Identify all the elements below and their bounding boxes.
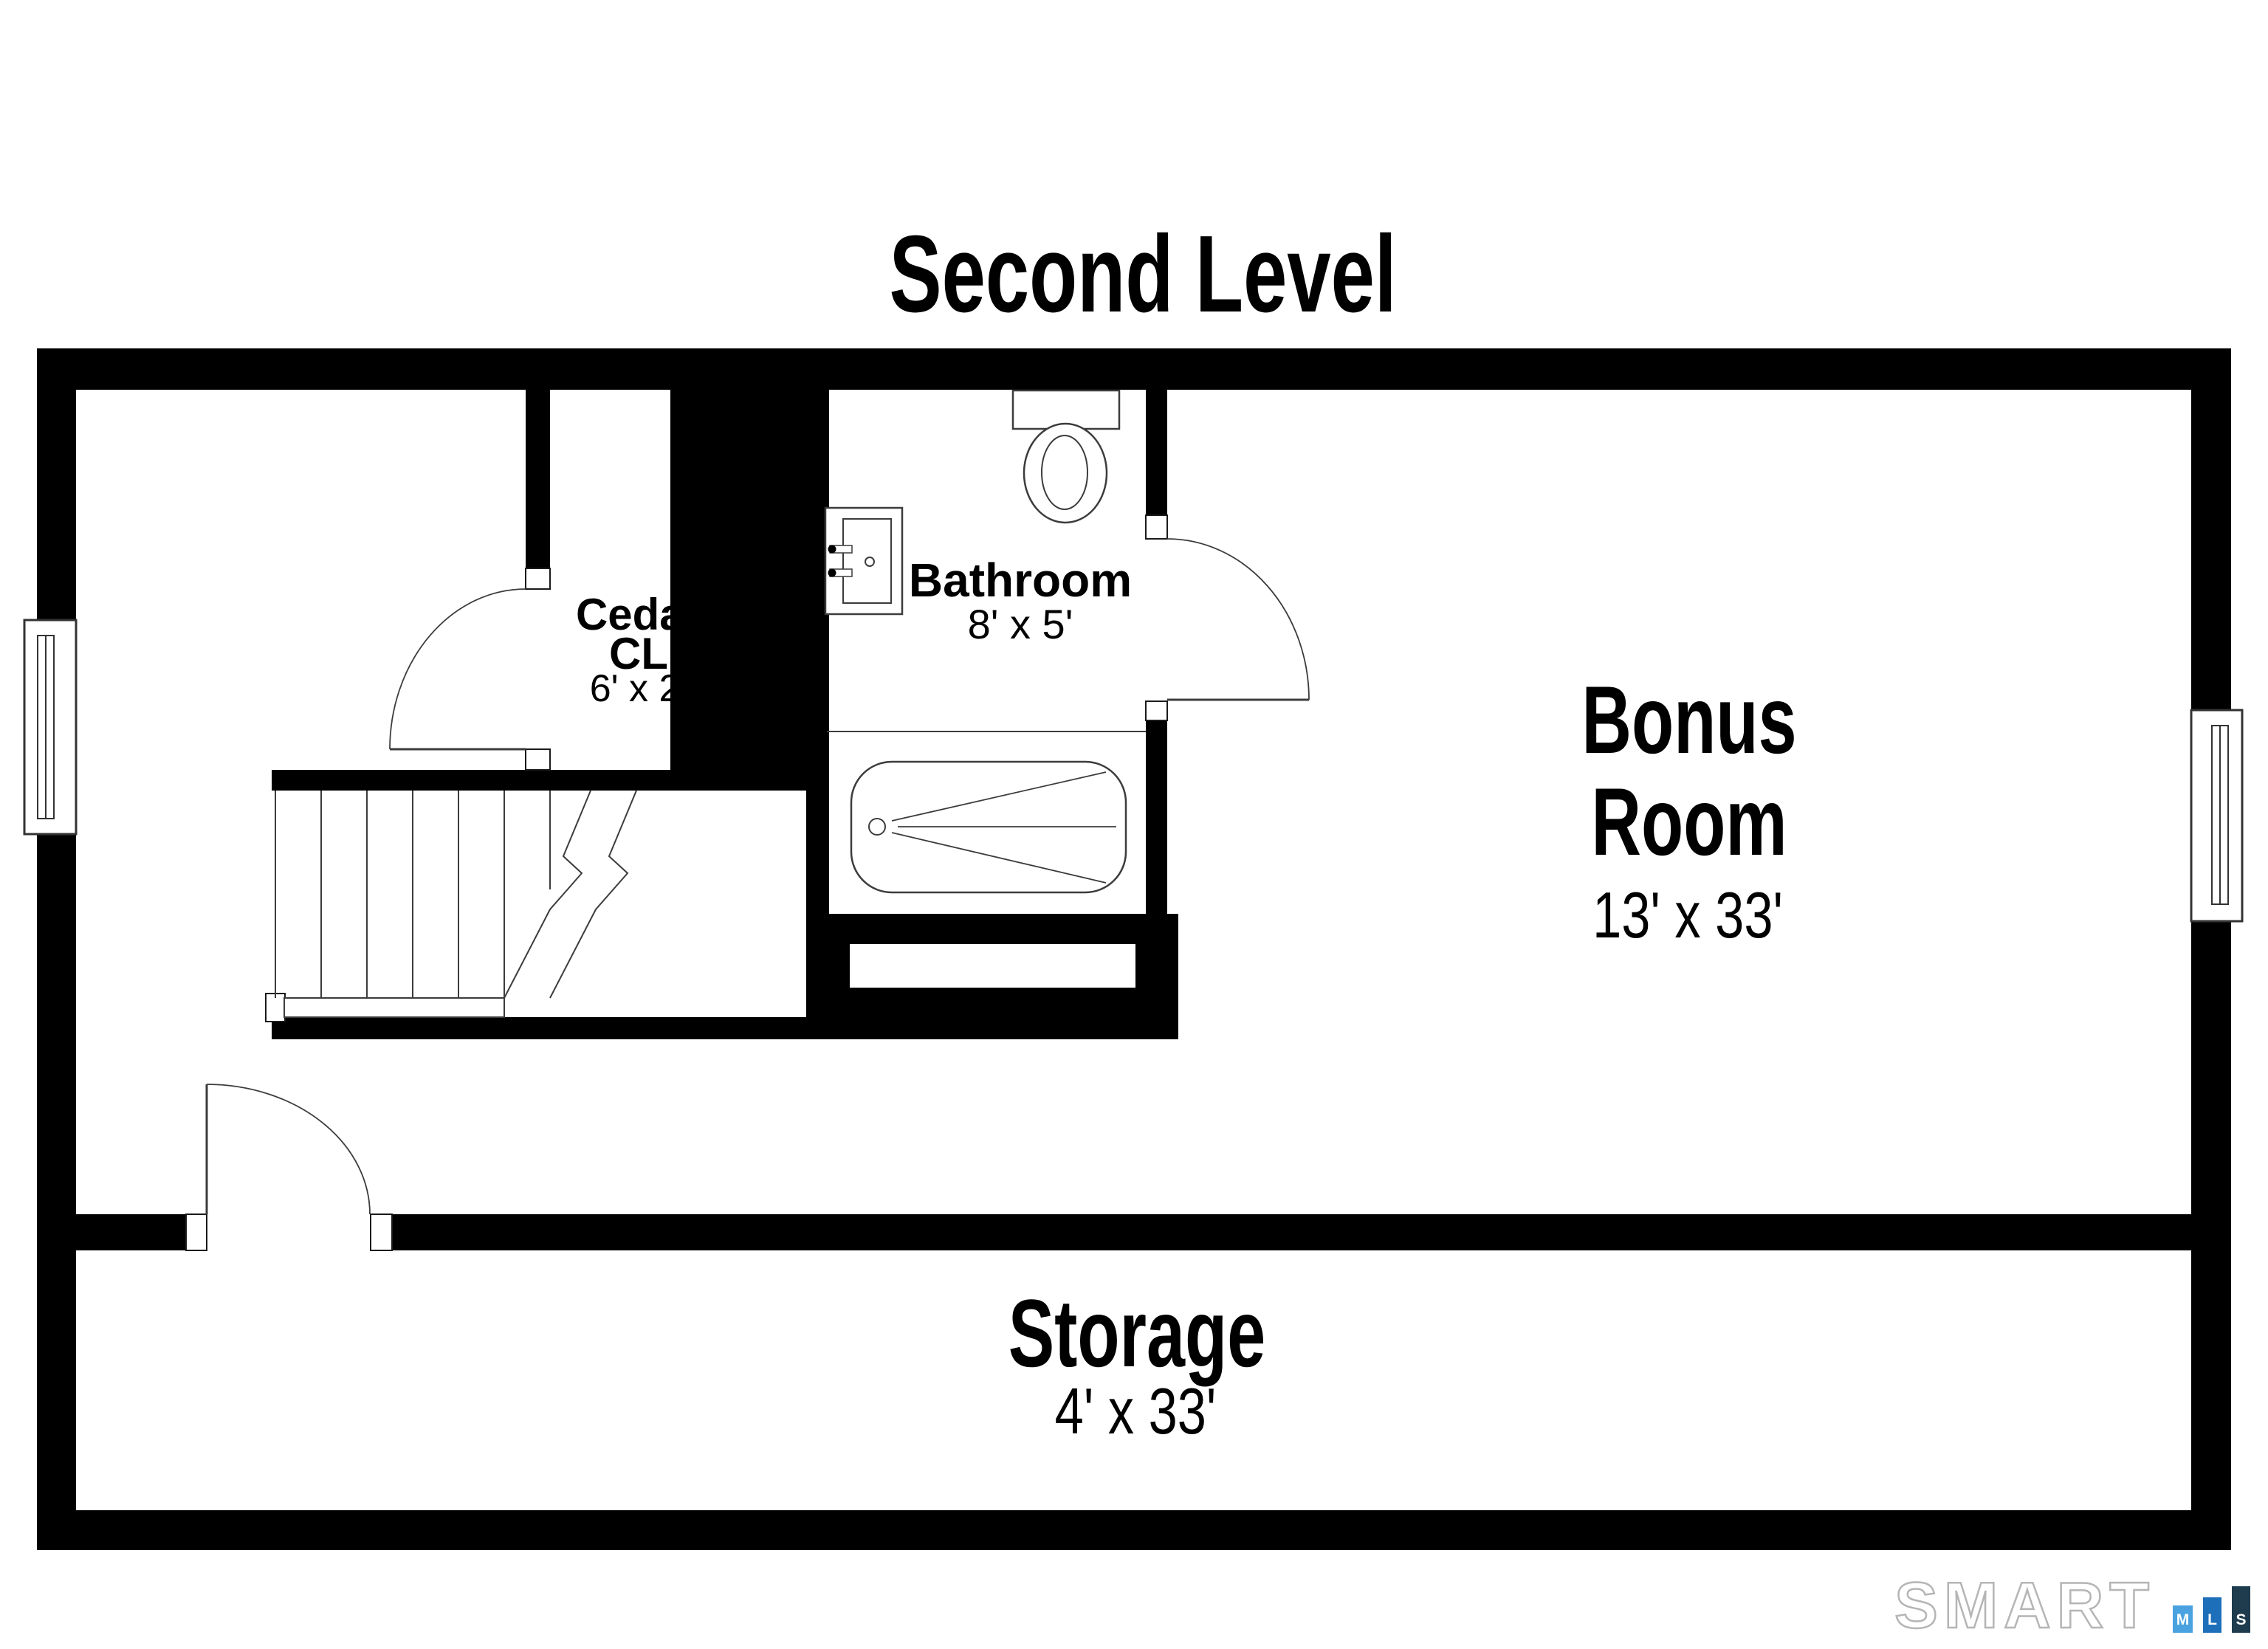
floor-plan-page: Second Level Cedar CL 6' x 2' Bathroom 8… — [0, 0, 2268, 1649]
wall-storage-left — [76, 1214, 186, 1250]
wall-stairwell-bottom — [272, 1017, 1178, 1039]
mls-bar-l: L — [2203, 1597, 2221, 1633]
window-left — [24, 620, 76, 834]
wall-bathroom-right-lower — [1146, 720, 1167, 914]
wall-storage-right — [392, 1214, 2191, 1250]
mls-bar-m: M — [2173, 1605, 2193, 1633]
stair-break-line — [504, 791, 591, 998]
door-swing-arc — [207, 1084, 370, 1214]
mls-bar-s: S — [2232, 1586, 2250, 1633]
bathtub-icon — [851, 762, 1126, 892]
wall-bathroom-left-lower — [806, 791, 829, 915]
smart-logo-wordmark: SMART — [1894, 1568, 2155, 1643]
jamb-bathroom-upper — [1146, 515, 1167, 539]
stair-landing-strip — [284, 998, 504, 1017]
jamb-cedar-upper — [526, 568, 550, 589]
bathroom-door — [1167, 539, 1309, 700]
wall-stairwell-top — [272, 770, 670, 791]
door-swing-arc — [1167, 539, 1309, 700]
room-dims-storage: 4' x 33' — [1055, 1379, 1217, 1444]
smart-mls-logo: SMART M L S — [1894, 1568, 2250, 1633]
jamb-storage-right — [371, 1214, 392, 1250]
cedar-closet-door — [390, 589, 526, 749]
wall-bathroom-right-upper — [1146, 390, 1167, 515]
storage-door — [207, 1084, 370, 1214]
wall-outer-left — [37, 348, 76, 1550]
linen-niche — [850, 944, 1135, 988]
wall-outer-right — [2191, 348, 2231, 1550]
room-label-bathroom: Bathroom — [909, 557, 1132, 604]
toilet-icon — [1013, 390, 1119, 523]
jamb-storage-left — [186, 1214, 207, 1250]
wall-outer-bottom — [37, 1510, 2231, 1550]
stairs — [275, 791, 636, 1017]
wall-outer-top — [37, 348, 2231, 390]
room-label-bonus-line2: Room — [1591, 774, 1787, 870]
room-dims-bathroom: 8' x 5' — [968, 604, 1073, 645]
room-label-storage: Storage — [1008, 1285, 1265, 1381]
room-dims-cedar: 6' x 2' — [590, 669, 688, 708]
jamb-bathroom-lower — [1146, 701, 1167, 720]
room-label-bonus-line1: Bonus — [1581, 672, 1796, 768]
sink-icon — [825, 508, 902, 614]
window-right — [2191, 710, 2242, 921]
door-swing-arc — [390, 589, 526, 749]
room-dims-bonus: 13' x 33' — [1592, 883, 1783, 948]
jamb-cedar-lower — [526, 749, 550, 770]
page-title: Second Level — [890, 220, 1397, 329]
wall-cedar-closet-left — [526, 390, 550, 568]
